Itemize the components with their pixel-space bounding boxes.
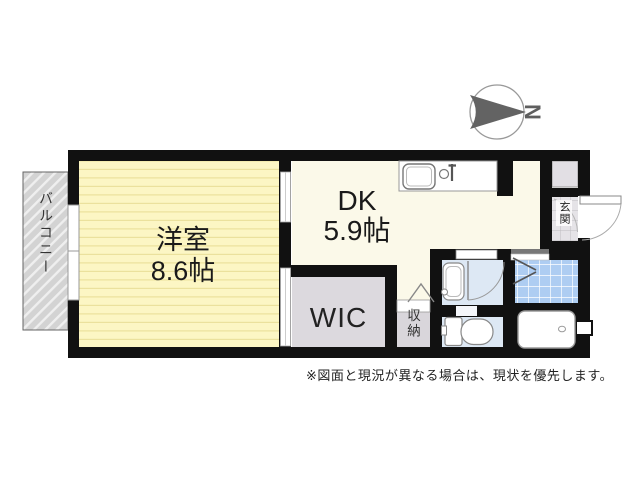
balcony-label: バルコニー	[36, 191, 56, 276]
storage-label: 収納	[402, 308, 422, 339]
bath-window	[576, 321, 592, 335]
bath-door-track	[511, 249, 549, 254]
toilet-tank	[445, 318, 462, 346]
dk-label: DK 5.9帖	[278, 186, 436, 246]
wall-wic-top	[280, 265, 397, 277]
floorplan-page: バルコニー 洋室 8.6帖 DK 5.9帖 WIC 収納 玄関 N ※図面と現況…	[0, 0, 640, 480]
toilet-flush-button	[442, 326, 447, 335]
toilet-bowl	[461, 319, 493, 345]
wall-under-closet	[552, 188, 578, 197]
faucet-base-icon	[440, 170, 449, 179]
entrance-door-leaf	[580, 196, 621, 204]
western-room-size: 8.6帖	[101, 256, 265, 287]
entrance-label: 玄関	[556, 200, 572, 226]
balcony-window-upper	[68, 205, 79, 251]
wall-kitchen-stub	[497, 150, 513, 196]
dk-size: 5.9帖	[278, 216, 436, 246]
bathroom-tile-floor	[515, 260, 578, 305]
wall-entrance-left	[540, 150, 552, 242]
wall-washroom-right	[503, 253, 515, 358]
western-room-label: 洋室 8.6帖	[101, 225, 265, 287]
washbasin-faucet-icon	[442, 289, 448, 295]
washroom-door-marker	[456, 250, 497, 259]
balcony-window-lower	[68, 251, 79, 300]
dk-name: DK	[278, 186, 436, 216]
bathtub	[518, 311, 575, 348]
wic-label: WIC	[292, 302, 385, 334]
toilet-door-gap	[456, 306, 477, 316]
compass-north-letter: N	[519, 104, 545, 120]
western-room-name: 洋室	[101, 225, 265, 256]
dk-area-lower	[292, 253, 397, 265]
disclaimer-note: ※図面と現況が異なる場合は、現状を優先します。	[306, 365, 613, 384]
wall-wic-right	[385, 265, 397, 347]
shoe-closet	[552, 161, 578, 187]
